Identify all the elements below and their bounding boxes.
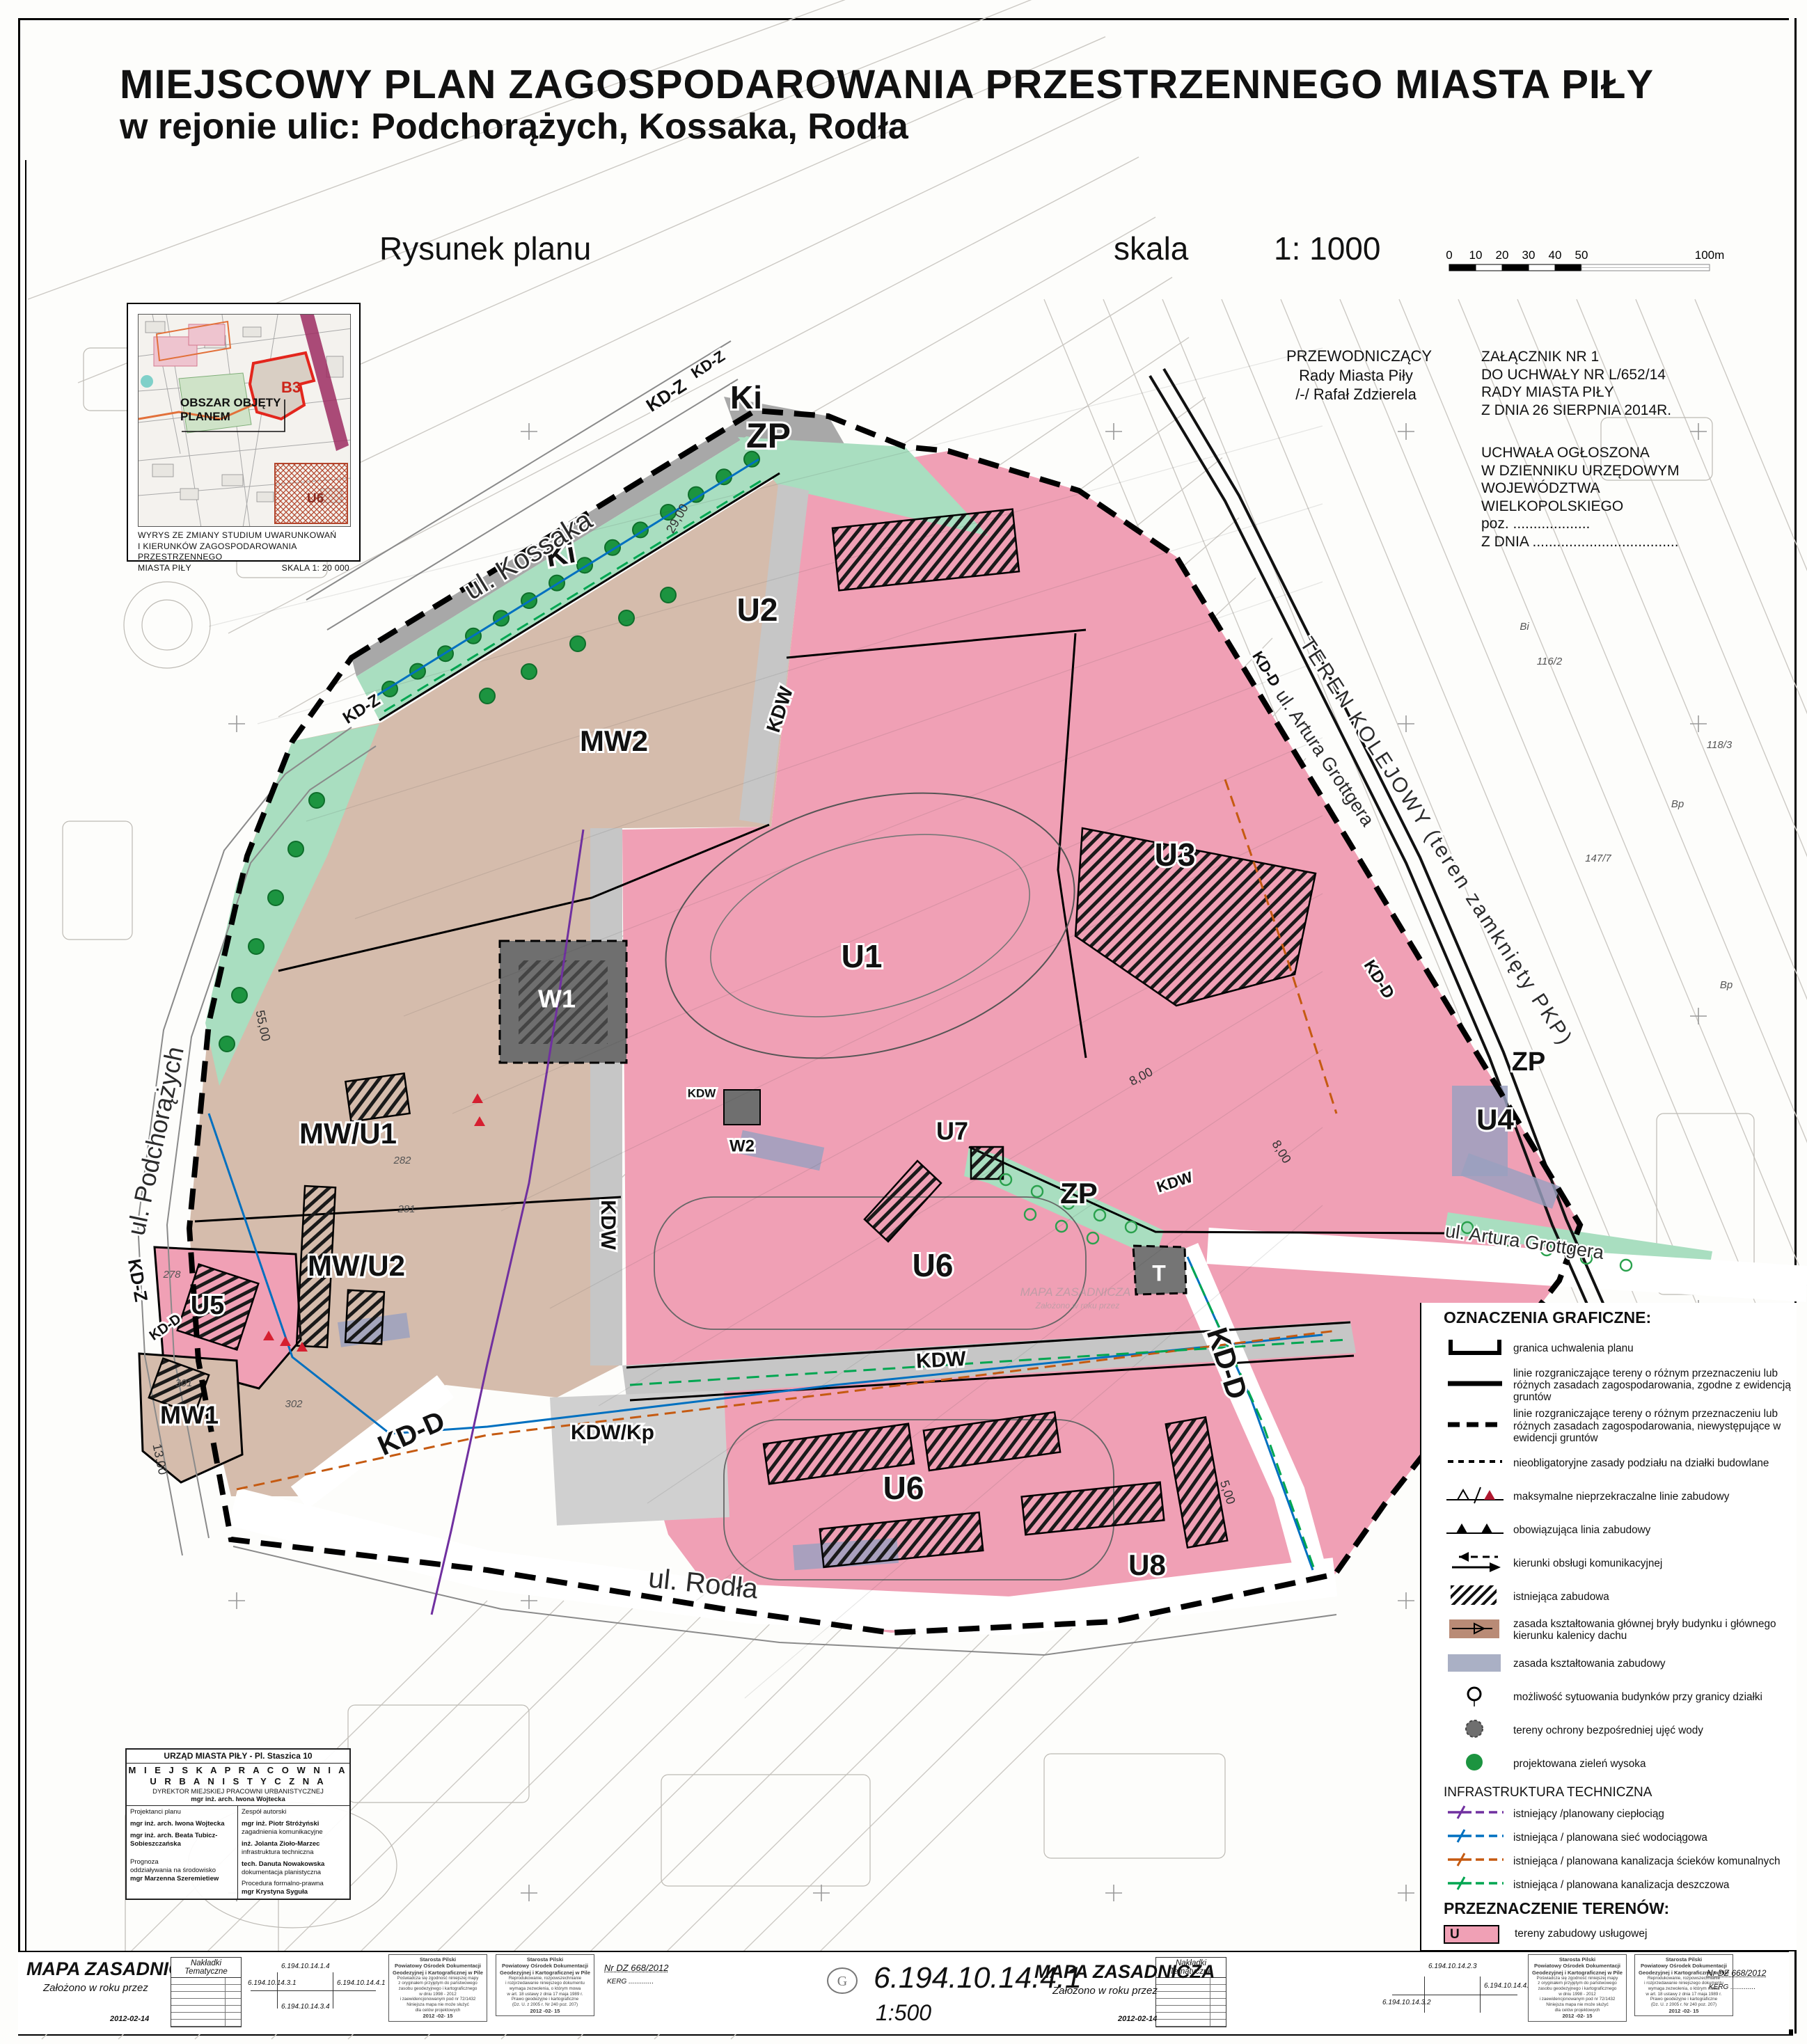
- attachment-note-line: ZAŁĄCZNIK NR 1: [1481, 348, 1671, 366]
- inset-caption-scale: SKALA 1: 20 000: [282, 563, 349, 574]
- zone-label-t: T: [1152, 1260, 1166, 1285]
- stamp-body-line: dla celów projektowych: [1531, 2008, 1624, 2013]
- legend-item: linie rozgraniczające tereny o różnym pr…: [1444, 1408, 1791, 1443]
- legend-symbol-dots-icon: [1444, 1449, 1513, 1477]
- legend-panel: OZNACZENIA GRAFICZNE: granica uchwalenia…: [1420, 1303, 1797, 1951]
- legend-graphic-items: granica uchwalenia planulinie rozgranicz…: [1444, 1334, 1791, 1778]
- zone-label-u4: U4: [1476, 1103, 1514, 1136]
- zone-label-u7: U7: [936, 1117, 968, 1146]
- scalebar-tick: 10: [1469, 248, 1483, 262]
- stamp-date: 2012 -02- 15: [498, 2008, 592, 2014]
- office-director-name: mgr inż. arch. Iwona Wojtecka: [127, 1796, 349, 1805]
- nr-dz-right: Nr DZ 668/2012: [1707, 1968, 1766, 1978]
- stamp-body-line: z oryginałem przyjętym do państwowego: [391, 1981, 484, 1986]
- author-line: mgr Krystyna Syguła: [242, 1888, 346, 1896]
- legend-item-label: obowiązująca linia zabudowy: [1513, 1524, 1650, 1536]
- stamp-body-line: Poświadcza się zgodność niniejszej mapy: [391, 1976, 484, 1981]
- zone-label-kd-z: KD-Z: [124, 1257, 152, 1303]
- author-line: infrastruktura techniczna: [242, 1848, 346, 1857]
- stamp-office-line: Geodezyjnej i Kartograficznej w Pile: [1531, 1970, 1624, 1976]
- chairman-note: PRZEWODNICZĄCYRady Miasta Piły/-/ Rafał …: [1286, 347, 1426, 404]
- legend-infra-label: istniejąca / planowana kanalizacja ściek…: [1513, 1855, 1780, 1867]
- geodesy-stamp-2: Starosta PilskiPowiatowy Ośrodek Dokumen…: [496, 1954, 594, 2016]
- legend-item-label: granica uchwalenia planu: [1513, 1342, 1634, 1354]
- legend-item: kierunki obsługi komunikacyjnej: [1444, 1549, 1791, 1578]
- author-line: Procedura formalno-prawna: [242, 1880, 346, 1888]
- stamp-body-line: Reprodukowanie, rozpowszechnianie: [498, 1976, 592, 1981]
- sheet-cross-label: 6.194.10.14.4.1: [337, 1979, 386, 1987]
- legend-symbol-dash-icon: [1444, 1412, 1513, 1441]
- kerg-right: KERG .............: [1709, 1983, 1755, 1991]
- parcel-label: 281: [397, 1203, 415, 1215]
- zone-label-u2: U2: [737, 592, 778, 628]
- inset-u6-label: U6: [307, 491, 324, 506]
- overlays-table-row: [171, 1992, 241, 1999]
- footer-strip: MAPA ZASADNICZAZałożono w roku przez2012…: [18, 1951, 1789, 2034]
- attachment-note-line: DO UCHWAŁY NR L/652/14: [1481, 366, 1671, 384]
- page-title-line2: w rejonie ulic: Podchorążych, Kossaka, R…: [120, 106, 908, 148]
- svg-text:Założono w roku przez: Założono w roku przez: [1035, 1301, 1120, 1310]
- stamp-body-line: z oryginałem przyjętym do państwowego: [1531, 1981, 1624, 1986]
- stamp-date: 2012 -02- 15: [391, 2013, 484, 2019]
- overlays-table-row: [1156, 1992, 1226, 1999]
- legend-item-label: zasada kształtowania głównej bryły budyn…: [1513, 1618, 1791, 1642]
- plan-sheet: MIEJSCOWY PLAN ZAGOSPODAROWANIA PRZESTRZ…: [0, 0, 1807, 2044]
- legend-item-label: zasada kształtowania zabudowy: [1513, 1658, 1666, 1670]
- stamp-date: 2012 -02- 15: [1531, 2013, 1624, 2019]
- legend-infra-label: istniejący /planowany ciepłociąg: [1513, 1808, 1664, 1820]
- sheet-cross-label: 6.194.10.14.4.2: [1484, 1982, 1533, 1990]
- legend-symbol-hatch-icon: [1444, 1583, 1513, 1611]
- sheet-scale-big: 1:500: [876, 2000, 931, 2026]
- kerg-left: KERG .............: [607, 1978, 654, 1986]
- publication-note-line: poz. ...................: [1481, 515, 1680, 533]
- inset-caption-2: I KIERUNKÓW ZAGOSPODAROWANIA PRZESTRZENN…: [138, 541, 349, 563]
- sheet-cross-line: [1480, 1976, 1481, 2013]
- stamp-body-line: w dniu 1998 - 2012: [1531, 1992, 1624, 1997]
- overlays-table-row: [1156, 2020, 1226, 2027]
- stamp-body-line: (Dz. U. z 2005 r. Nr 240 poz. 207): [498, 2002, 592, 2008]
- planning-office-stamp: URZĄD MIASTA PIŁY - Pl. Staszica 10 M I …: [125, 1748, 351, 1900]
- parcel-label: 278: [162, 1269, 181, 1281]
- zone-label-ki: Ki: [730, 379, 762, 415]
- stamp-body-line: Poświadcza się zgodność niniejszej mapy: [1531, 1976, 1624, 1981]
- stamp-body-line: i zaewidencjonowanym pod nr 72/1432: [391, 1997, 484, 2002]
- legend-item-label: kierunki obsługi komunikacyjnej: [1513, 1558, 1662, 1569]
- geodesy-stamp-3: Starosta PilskiPowiatowy Ośrodek Dokumen…: [1528, 1954, 1627, 2022]
- legend-symbol-obligline-icon: [1444, 1516, 1513, 1544]
- base-map-date-right: 2012-02-14: [1118, 2015, 1157, 2023]
- stamp-office-line: Geodezyjnej i Kartograficznej w Pile: [391, 1970, 484, 1976]
- legend-item: granica uchwalenia planu: [1444, 1334, 1791, 1363]
- street-label: ul. Podchorążych: [121, 1044, 189, 1238]
- zone-label-zp: ZP: [1512, 1047, 1546, 1077]
- stamp-body-line: (Dz. U. z 2005 r. Nr 240 poz. 207): [1637, 2002, 1730, 2008]
- author-entry: mgr inż. Piotr Stróżyńskizagadnienia kom…: [242, 1820, 346, 1837]
- page-title-line1: MIEJSCOWY PLAN ZAGOSPODAROWANIA PRZESTRZ…: [120, 61, 1654, 108]
- legend-item-label: linie rozgraniczające tereny o różnym pr…: [1513, 1408, 1791, 1443]
- overlays-table-row: [171, 2020, 241, 2027]
- legend-landuse-heading: PRZEZNACZENIE TERENÓW:: [1444, 1899, 1791, 1918]
- legend-item-label: możliwość sytuowania budynków przy grani…: [1513, 1691, 1762, 1703]
- author-line: tech. Danuta Nowakowska: [242, 1860, 346, 1869]
- parcel-label: 118/3: [1707, 739, 1733, 751]
- zone-label-u1: U1: [842, 938, 883, 974]
- zone-label-kdw: KDW: [597, 1200, 620, 1250]
- sheet-cross-label: 6.194.10.14.2.3: [1428, 1963, 1477, 1970]
- office-address: URZĄD MIASTA PIŁY - Pl. Staszica 10: [127, 1750, 349, 1764]
- parcel-label: Bp: [1720, 979, 1733, 991]
- forecast-author: mgr Marzenna Szeremietiew: [130, 1875, 234, 1883]
- zone-label-kdw: KDW: [915, 1347, 967, 1373]
- zone-label-w1: W1: [538, 985, 576, 1013]
- geodesy-stamp-1: Starosta PilskiPowiatowy Ośrodek Dokumen…: [388, 1954, 487, 2022]
- overlays-table-row: [171, 1978, 241, 1985]
- stamp-body-line: w dniu 1998 - 2012: [391, 1992, 484, 1997]
- stamp-body-line: Niniejsza mapa nie może służyć: [1531, 2002, 1624, 2008]
- legend-heading: OZNACZENIA GRAFICZNE:: [1444, 1308, 1791, 1327]
- author-line: mgr inż. Piotr Stróżyński: [242, 1820, 346, 1828]
- legend-landuse-swatch-u: U: [1444, 1925, 1499, 1944]
- author-line: zagadnienia komunikacyjne: [242, 1828, 346, 1837]
- legend-item-label: istniejąca zabudowa: [1513, 1591, 1609, 1603]
- legend-item: zasada kształtowania głównej bryły budyn…: [1444, 1616, 1791, 1645]
- parcel-label: Bp: [1671, 798, 1684, 810]
- sheet-cross-line: [333, 1972, 333, 2009]
- zone-label-kdw: KDW: [688, 1086, 717, 1100]
- parcel-label: 147/7: [1585, 853, 1611, 864]
- designers-header: Projektanci planu: [130, 1808, 234, 1816]
- inset-area-label: PLANEM: [180, 410, 230, 423]
- stamp-body-line: zasobu geodezyjnego i kartograficznego: [1531, 1986, 1624, 1992]
- stamp-office-line: Powiatowy Ośrodek Dokumentacji: [391, 1963, 484, 1969]
- stamp-office-line: Starosta Pilski: [391, 1956, 484, 1963]
- overlays-table-row: [1156, 1985, 1226, 1992]
- base-map-title-right: MAPA ZASADNICZA: [1034, 1961, 1215, 1983]
- legend-infra-symbol-icon: [1444, 1828, 1513, 1847]
- drawing-label: Rysunek planu: [379, 230, 591, 267]
- zone-label-u8: U8: [1128, 1548, 1166, 1581]
- chairman-note-line: PRZEWODNICZĄCY: [1286, 347, 1426, 366]
- scalebar-tick: 40: [1549, 248, 1562, 262]
- stamp-office-line: Starosta Pilski: [1637, 1956, 1730, 1963]
- zone-label-mw-u1: MW/U1: [299, 1117, 397, 1150]
- stamp-authors-column: Zespół autorskimgr inż. Piotr Stróżyński…: [238, 1806, 349, 1899]
- legend-landuse-label: tereny zabudowy usługowej: [1515, 1928, 1647, 1940]
- chairman-note-line: Rady Miasta Piły: [1286, 366, 1426, 386]
- stamp-body-line: i zaewidencjonowanym pod nr 72/1432: [1531, 1997, 1624, 2002]
- publication-note-line: W DZIENNIKU URZĘDOWYM: [1481, 462, 1680, 480]
- stamp-date: 2012 -02- 15: [1637, 2008, 1730, 2014]
- legend-infra-symbol-icon: [1444, 1876, 1513, 1894]
- legend-infra-symbol-icon: [1444, 1852, 1513, 1871]
- scalebar-tick: 0: [1446, 248, 1453, 262]
- overlays-table-row: [171, 1999, 241, 2006]
- inset-map-drawing: OBSZAR OBJĘTYPLANEMB3U6: [139, 315, 351, 527]
- legend-item: linie rozgraniczające tereny o różnym pr…: [1444, 1368, 1791, 1403]
- sheet-cross-line: [1424, 1976, 1425, 2013]
- legend-symbol-bracket-icon: [1444, 1334, 1513, 1363]
- legend-item-label: nieobligatoryjne zasady podziału na dzia…: [1513, 1457, 1769, 1469]
- parcel-label: 302: [285, 1398, 303, 1410]
- stamp-body-line: Niniejsza mapa nie może służyć: [391, 2002, 484, 2008]
- zone-label-u6: U6: [913, 1247, 954, 1283]
- legend-landuse-items: Utereny zabudowy usługowejMW/Utereny zab…: [1444, 1925, 1791, 1951]
- stamp-body-line: Prawo geodezyjne i kartograficzne: [1637, 1997, 1730, 2002]
- parcel-label: Bi: [1520, 621, 1529, 633]
- legend-symbol-bluegray-icon: [1444, 1649, 1513, 1678]
- stamp-office-line: Powiatowy Ośrodek Dokumentacji: [498, 1963, 592, 1969]
- stamp-body-line: zasobu geodezyjnego i kartograficznego: [391, 1986, 484, 1992]
- inset-area-label: OBSZAR OBJĘTY: [180, 396, 281, 409]
- publication-note-line: WOJEWÓDZTWA: [1481, 480, 1680, 498]
- stamp-body-line: wymaga zezwolenia, o którym mowa: [498, 1986, 592, 1992]
- office-director-title: DYREKTOR MIEJSKIEJ PRACOWNI URBANISTYCZN…: [127, 1788, 349, 1796]
- zone-label-kdw-kp: KDW/Kp: [571, 1421, 654, 1444]
- base-map-sub-right: Założono w roku przez: [1052, 1985, 1158, 1997]
- location-inset: OBSZAR OBJĘTYPLANEMB3U6 WYRYS ZE ZMIANY …: [127, 303, 361, 562]
- legend-symbol-circleGreen-icon: [1444, 1750, 1513, 1778]
- inset-map: OBSZAR OBJĘTYPLANEMB3U6: [138, 314, 351, 527]
- sheet-cross-label: 6.194.10.14.3.4: [281, 2003, 330, 2011]
- nr-dz-left: Nr DZ 668/2012: [604, 1963, 669, 1973]
- zone-label-zp: ZP: [1060, 1177, 1098, 1210]
- legend-infra-item: istniejąca / planowana kanalizacja ściek…: [1444, 1852, 1791, 1871]
- legend-infra-items: istniejący /planowany ciepłociągistnieją…: [1444, 1805, 1791, 1894]
- legend-symbol-solid-icon: [1444, 1371, 1513, 1400]
- forecast-line: oddziaływania na środowisko: [130, 1867, 234, 1875]
- designer-name: mgr inż. arch. Beata Tubicz-Sobieszczańs…: [130, 1832, 234, 1848]
- author-line: inż. Jolanta Zioło-Marzec: [242, 1840, 346, 1848]
- zone-label-u5: U5: [191, 1291, 225, 1320]
- legend-item: obowiązująca linia zabudowy: [1444, 1516, 1791, 1544]
- stamp-designers-column: Projektanci planumgr inż. arch. Iwona Wo…: [127, 1806, 238, 1899]
- designer-name: mgr inż. arch. Iwona Wojtecka: [130, 1820, 234, 1828]
- publication-note-line: Z DNIA .................................…: [1481, 533, 1680, 551]
- forecast-line: Prognoza: [130, 1858, 234, 1867]
- environment-forecast: Prognozaoddziaływania na środowiskomgr M…: [130, 1858, 234, 1883]
- zone-label-kd-z: KD-Z: [340, 690, 384, 727]
- legend-infra-item: istniejąca / planowana kanalizacja deszc…: [1444, 1876, 1791, 1894]
- legend-symbol-arrows-icon: [1444, 1549, 1513, 1578]
- legend-infra-label: istniejąca / planowana sieć wodociągowa: [1513, 1832, 1707, 1844]
- zone-label-u6: U6: [883, 1470, 924, 1506]
- inset-caption-3: MIASTA PIŁY: [138, 563, 191, 574]
- author-line: dokumentacja planistyczna: [242, 1869, 346, 1877]
- zone-label-mw1: MW1: [160, 1401, 219, 1429]
- sheet-cross-label: 6.194.10.14.1.4: [281, 1963, 330, 1970]
- publication-note-line: WIELKOPOLSKIEGO: [1481, 498, 1680, 516]
- author-entry: tech. Danuta Nowakowskadokumentacja plan…: [242, 1860, 346, 1877]
- sheet-cross-line: [1392, 1995, 1517, 1995]
- parcel-label: 116/2: [1537, 656, 1563, 667]
- scalebar-drawing: 01020304050100m: [1446, 248, 1739, 283]
- stamp-body-line: Prawo geodezyjne i kartograficzne: [498, 1997, 592, 2002]
- authors-header: Zespół autorski: [242, 1808, 346, 1816]
- legend-symbol-circleDark-icon: [1444, 1716, 1513, 1745]
- stamp-office-line: Powiatowy Ośrodek Dokumentacji: [1531, 1963, 1624, 1969]
- legend-item: istniejąca zabudowa: [1444, 1583, 1791, 1611]
- legend-item-label: tereny ochrony bezpośredniej ujęć wody: [1513, 1725, 1703, 1736]
- stamp-body-line: w art. 18 ustawy z dnia 17 maja 1989 r.: [1637, 1992, 1730, 1997]
- zone-label-w2: W2: [729, 1136, 755, 1155]
- legend-symbol-brown-icon: [1444, 1616, 1513, 1645]
- legend-item: projektowana zieleń wysoka: [1444, 1750, 1791, 1778]
- scalebar-end: 100m: [1695, 248, 1725, 262]
- zone-label-mw2: MW2: [580, 724, 648, 757]
- legend-item: tereny ochrony bezpośredniej ujęć wody: [1444, 1716, 1791, 1745]
- parcel-label: 301: [175, 1377, 192, 1389]
- legend-item: maksymalne nieprzekraczalne linie zabudo…: [1444, 1482, 1791, 1511]
- scalebar: 01020304050100m: [1446, 248, 1739, 283]
- zone-label-u3: U3: [1155, 837, 1196, 873]
- attachment-note-line: RADY MIASTA PIŁY: [1481, 383, 1671, 402]
- legend-item: zasada kształtowania zabudowy: [1444, 1649, 1791, 1678]
- legend-infra-item: istniejąca / planowana sieć wodociągowa: [1444, 1828, 1791, 1847]
- stamp-body-line: w art. 18 ustawy z dnia 17 maja 1989 r.: [498, 1992, 592, 1997]
- legend-infra-heading: INFRASTRUKTURA TECHNICZNA: [1444, 1785, 1791, 1800]
- sheet-cross-label: 6.194.10.14.3.2: [1382, 1999, 1431, 2006]
- author-entry: Procedura formalno-prawnamgr Krystyna Sy…: [242, 1880, 346, 1896]
- legend-landuse-item: Utereny zabudowy usługowej: [1444, 1925, 1791, 1944]
- legend-item: możliwość sytuowania budynków przy grani…: [1444, 1683, 1791, 1711]
- publication-note: UCHWAŁA OGŁOSZONAW DZIENNIKU URZĘDOWYMWO…: [1481, 444, 1680, 551]
- legend-infra-item: istniejący /planowany ciepłociąg: [1444, 1805, 1791, 1823]
- scalebar-tick: 50: [1575, 248, 1588, 262]
- overlays-table-row: [1156, 1999, 1226, 2006]
- stamp-office-line: Geodezyjnej i Kartograficznej w Pile: [498, 1970, 592, 1976]
- legend-infra-symbol-icon: [1444, 1805, 1513, 1823]
- legend-infra-label: istniejąca / planowana kanalizacja deszc…: [1513, 1879, 1729, 1891]
- author-entry: inż. Jolanta Zioło-Marzecinfrastruktura …: [242, 1840, 346, 1857]
- zone-label-zp: ZP: [746, 416, 791, 455]
- overlays-table-row: [171, 1985, 241, 1992]
- legend-item-label: linie rozgraniczające tereny o różnym pr…: [1513, 1368, 1791, 1403]
- parcel-label: 282: [393, 1155, 411, 1166]
- overlays-table-title: Nakładki Tematyczne: [171, 1958, 241, 1978]
- geodesy-logo-icon: G: [826, 1965, 859, 1999]
- scale-word: skala: [1114, 230, 1188, 267]
- legend-item: nieobligatoryjne zasady podziału na dzia…: [1444, 1449, 1791, 1477]
- scalebar-tick: 20: [1496, 248, 1509, 262]
- inset-b3-label: B3: [281, 379, 301, 396]
- stamp-body-line: dla celów projektowych: [391, 2008, 484, 2013]
- attachment-note: ZAŁĄCZNIK NR 1DO UCHWAŁY NR L/652/14RADY…: [1481, 348, 1671, 419]
- publication-note-line: UCHWAŁA OGŁOSZONA: [1481, 444, 1680, 462]
- overlays-table-row: [1156, 2013, 1226, 2020]
- base-map-sub: Założono w roku przez: [43, 1982, 148, 1994]
- legend-item-label: projektowana zieleń wysoka: [1513, 1758, 1646, 1770]
- attachment-note-line: Z DNIA 26 SIERPNIA 2014R.: [1481, 402, 1671, 420]
- chairman-note-line: /-/ Rafał Zdzierela: [1286, 385, 1426, 404]
- zone-label-kd-z: KD-Z: [688, 347, 728, 382]
- sheet-cross-line: [277, 1972, 278, 2009]
- overlays-table-row: [1156, 2006, 1226, 2013]
- stamp-office-line: Starosta Pilski: [498, 1956, 592, 1963]
- legend-symbol-maxline-icon: [1444, 1482, 1513, 1511]
- scalebar-tick: 30: [1522, 248, 1536, 262]
- inset-caption-1: WYRYS ZE ZMIANY STUDIUM UWARUNKOWAŃ: [138, 530, 349, 541]
- legend-item-label: maksymalne nieprzekraczalne linie zabudo…: [1513, 1491, 1729, 1503]
- base-map-date: 2012-02-14: [110, 2015, 149, 2023]
- sheet-cross-line: [251, 1990, 376, 1991]
- overlays-table-left: Nakładki Tematyczne: [171, 1957, 242, 2027]
- svg-text:G: G: [837, 1974, 847, 1989]
- sheet-cross-label: 6.194.10.14.3.1: [248, 1979, 297, 1987]
- legend-symbol-circleO-icon: [1444, 1683, 1513, 1711]
- office-name: M I E J S K A P R A C O W N I A U R B A …: [127, 1764, 349, 1788]
- svg-text:MAPA ZASADNICZA: MAPA ZASADNICZA: [1020, 1285, 1131, 1299]
- zone-label-mw-u2: MW/U2: [308, 1249, 405, 1282]
- stamp-office-line: Starosta Pilski: [1531, 1956, 1624, 1963]
- scale-value: 1: 1000: [1274, 230, 1380, 267]
- stamp-body-line: i rozprzedawanie niniejszego dokumentu: [498, 1981, 592, 1986]
- overlays-table-row: [171, 2013, 241, 2020]
- overlays-table-row: [171, 2006, 241, 2013]
